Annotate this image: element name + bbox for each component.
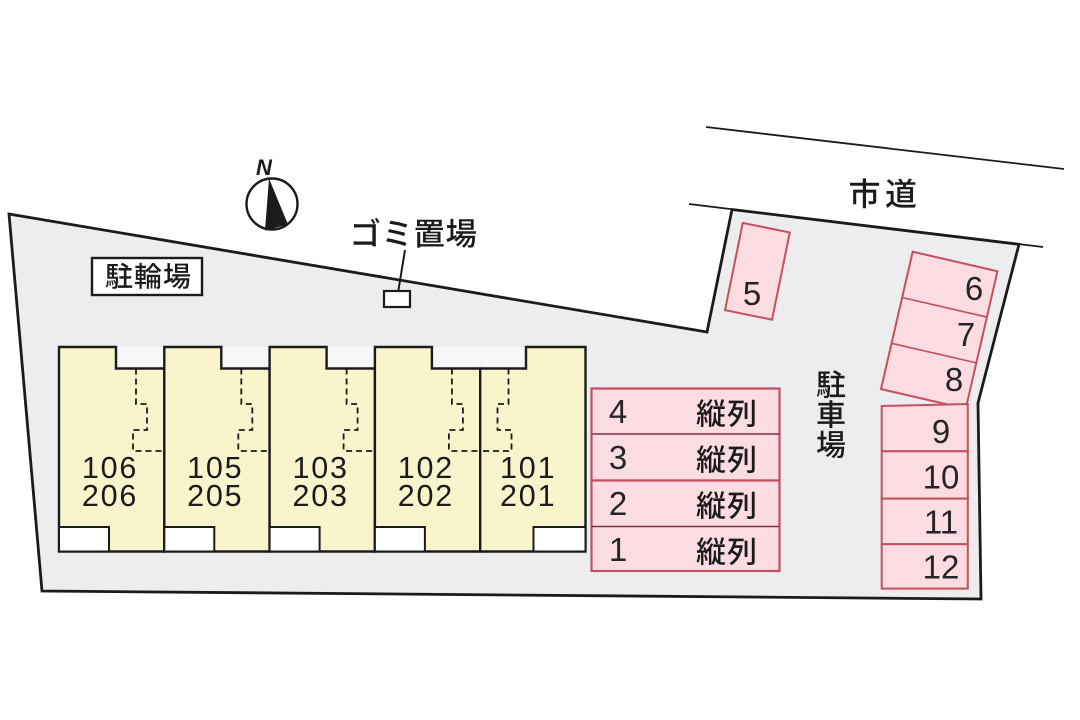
svg-text:11: 11 xyxy=(924,504,958,541)
svg-text:12: 12 xyxy=(923,549,960,586)
svg-text:201: 201 xyxy=(500,479,556,513)
svg-text:N: N xyxy=(256,155,273,180)
svg-text:7: 7 xyxy=(957,316,975,353)
svg-text:206: 206 xyxy=(82,479,138,513)
svg-text:8: 8 xyxy=(945,361,963,398)
svg-text:202: 202 xyxy=(398,479,454,513)
svg-text:5: 5 xyxy=(743,275,761,312)
svg-text:3: 3 xyxy=(609,439,627,476)
svg-text:10: 10 xyxy=(923,459,960,496)
svg-text:6: 6 xyxy=(965,270,983,307)
svg-text:2: 2 xyxy=(609,485,627,522)
svg-text:1: 1 xyxy=(609,531,627,568)
svg-text:4: 4 xyxy=(609,393,627,430)
svg-text:203: 203 xyxy=(292,479,348,513)
svg-text:205: 205 xyxy=(187,479,243,513)
svg-text:9: 9 xyxy=(932,413,950,450)
